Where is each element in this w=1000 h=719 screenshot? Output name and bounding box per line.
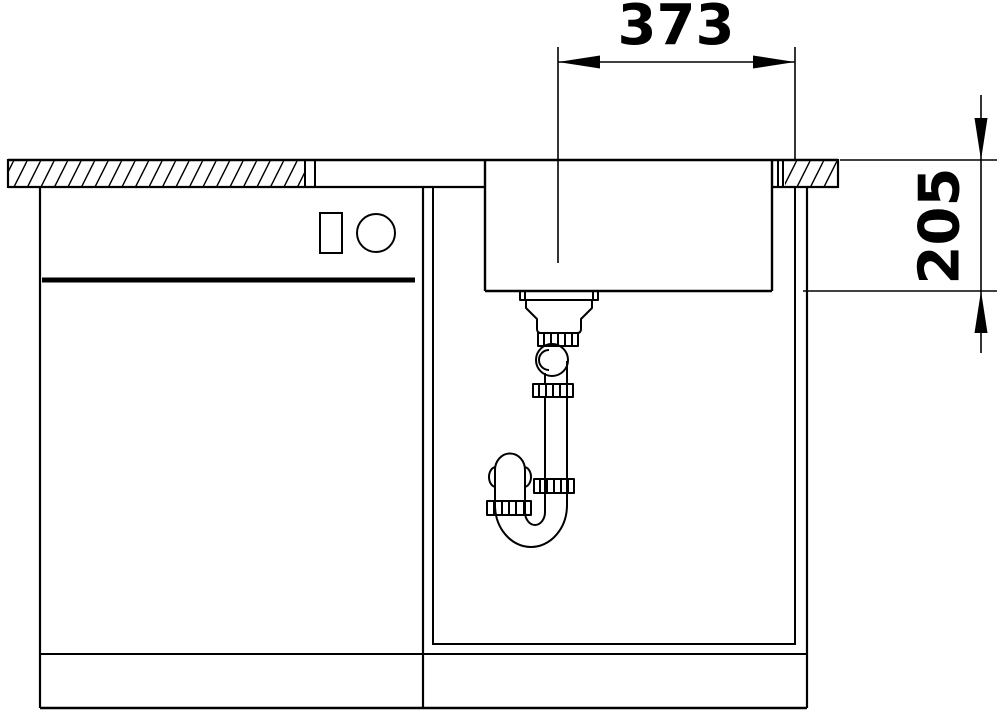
countertop	[8, 159, 838, 188]
sink-installation-drawing: 373 205	[0, 0, 1000, 719]
trap-nut-left	[487, 501, 531, 515]
countertop-hatch-left	[9, 160, 305, 187]
width-arrow-right	[753, 56, 795, 69]
drain-flange	[520, 291, 598, 300]
drain-strainer-cup	[526, 300, 592, 333]
sink-cabinet	[433, 187, 807, 708]
depth-arrow-top	[975, 118, 988, 160]
countertop-hatch-right	[785, 160, 838, 187]
installation-drawing-canvas: 373 205	[0, 0, 1000, 719]
depth-dimension-label: 205	[908, 168, 973, 285]
sink-cabinet-inner-box	[433, 187, 795, 644]
drain-nut-2	[533, 384, 573, 397]
control-switch	[320, 213, 342, 253]
width-arrow-left	[558, 56, 600, 69]
control-knob	[357, 214, 395, 252]
width-dimension-label: 373	[618, 0, 735, 58]
swivel-elbow-inner	[539, 350, 549, 370]
drain-nut-1	[538, 333, 578, 346]
dimension-width: 373	[558, 0, 795, 263]
trap-riser-dome	[495, 454, 525, 470]
trap-inner-bend	[525, 512, 545, 525]
left-cabinet	[40, 187, 423, 708]
sink-basin	[485, 160, 772, 291]
drain-assembly	[487, 291, 598, 547]
trap-nut-right	[534, 479, 574, 493]
depth-arrow-bottom	[975, 291, 988, 333]
dimension-depth: 205	[803, 95, 997, 353]
swivel-elbow	[536, 344, 568, 376]
